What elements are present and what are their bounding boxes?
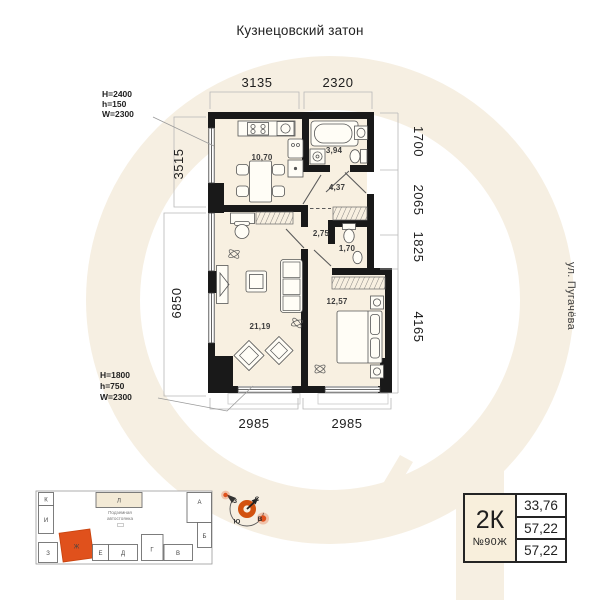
site-building-label: И bbox=[44, 518, 48, 524]
stove bbox=[248, 123, 269, 136]
dim-right-3: 1825 bbox=[411, 232, 426, 263]
apartment-info-card: 2К №90Ж 33,76 57,22 57,22 bbox=[463, 493, 567, 563]
site-building-label: В bbox=[176, 551, 180, 557]
compass-dot-small bbox=[223, 493, 227, 497]
bathtub bbox=[311, 121, 358, 146]
window-sill-left bbox=[228, 394, 300, 405]
kitchen-sink bbox=[277, 122, 294, 136]
site-building-label: Л bbox=[117, 499, 121, 505]
dim-left-2: 6850 bbox=[169, 288, 184, 319]
bed bbox=[337, 311, 382, 363]
fridge bbox=[288, 139, 303, 158]
bedroom-wardrobe bbox=[332, 277, 385, 289]
nightstand-2 bbox=[371, 365, 384, 378]
area-total: 57,22 bbox=[517, 540, 565, 561]
room-label-corridor: 2,75 bbox=[313, 229, 330, 238]
dim-bottom-2: 2985 bbox=[332, 416, 363, 431]
room-label-bathroom: 3,94 bbox=[326, 146, 343, 155]
page-title: Кузнецовский затон bbox=[0, 23, 600, 38]
site-building bbox=[187, 493, 212, 523]
nightstand-1 bbox=[371, 296, 384, 309]
pillow-1 bbox=[371, 315, 380, 335]
room-label-hallway: 4,37 bbox=[329, 183, 346, 192]
window-spec-bottom-line3: W=2300 bbox=[100, 392, 132, 402]
dim-bottom-1: 2985 bbox=[239, 416, 270, 431]
dim-right-2: 2065 bbox=[411, 185, 426, 216]
room-label-living: 21,19 bbox=[249, 322, 270, 331]
living-window-bottom bbox=[238, 387, 292, 392]
site-building-label: Е bbox=[98, 551, 102, 557]
dim-top-1: 3135 bbox=[242, 75, 273, 90]
apartment-number: №90Ж bbox=[473, 536, 508, 548]
sofa bbox=[281, 260, 303, 313]
floorplan-page: 10,70 3,94 4,37 2,75 1,70 21,19 12,57 31… bbox=[0, 0, 600, 600]
room-label-bedroom: 12,57 bbox=[326, 297, 347, 306]
bathroom-toilet bbox=[350, 150, 367, 164]
pillow-2 bbox=[371, 338, 380, 358]
parking-label-line2: автостоянка bbox=[107, 516, 134, 521]
compass-west-label: З bbox=[233, 498, 237, 505]
hall-wardrobe bbox=[333, 207, 367, 220]
window-sill-right bbox=[318, 394, 388, 405]
site-building-label: А bbox=[197, 500, 201, 506]
bedroom-window-bottom bbox=[325, 387, 380, 392]
tv-unit bbox=[217, 266, 230, 304]
dim-right-4: 4165 bbox=[411, 312, 426, 343]
compass-north-label: С bbox=[255, 496, 260, 503]
street-label: ул. Пугачёва bbox=[565, 262, 577, 331]
coffee-table bbox=[246, 271, 267, 292]
wc-toilet bbox=[343, 224, 356, 243]
window-spec-top-line2: h=150 bbox=[102, 99, 127, 109]
compass-east-label: В bbox=[258, 516, 263, 523]
kitchen-cabinet bbox=[288, 160, 303, 177]
dim-left-1: 3515 bbox=[171, 149, 186, 180]
window-spec-bottom-line1: H=1800 bbox=[100, 370, 130, 380]
site-building-label: З bbox=[46, 551, 50, 557]
living-window-upper bbox=[209, 213, 214, 271]
compass-south-label: Ю bbox=[234, 519, 241, 526]
room-label-kitchen: 10,70 bbox=[251, 153, 272, 162]
apartment-type: 2К bbox=[476, 508, 504, 533]
apartment-areas: 33,76 57,22 57,22 bbox=[517, 495, 565, 561]
site-building-label: Д bbox=[121, 551, 125, 557]
window-spec-top-line1: H=2400 bbox=[102, 89, 132, 99]
dining-table bbox=[250, 161, 272, 202]
parking-label-line1: Подземная bbox=[108, 510, 132, 515]
window-spec-top-line3: W=2300 bbox=[102, 109, 134, 119]
site-building-label-highlighted: Ж bbox=[74, 545, 80, 551]
window-spec-bottom-line2: h=750 bbox=[100, 381, 125, 391]
desk-chair bbox=[235, 222, 250, 239]
apartment-type-cell: 2К №90Ж bbox=[465, 495, 517, 561]
bathroom-sink bbox=[355, 126, 368, 140]
wc-sink bbox=[353, 251, 362, 263]
room-label-wc: 1,70 bbox=[339, 244, 356, 253]
kitchen-window bbox=[209, 128, 214, 183]
living-wardrobe bbox=[256, 212, 293, 224]
living-window-lower bbox=[209, 293, 214, 343]
washing-machine bbox=[310, 149, 325, 164]
dim-top-2: 2320 bbox=[323, 75, 354, 90]
site-building-label: К bbox=[44, 498, 48, 504]
area-without-balcony: 57,22 bbox=[517, 516, 565, 541]
dim-right-1: 1700 bbox=[411, 126, 426, 157]
site-building-label: Б bbox=[203, 534, 207, 540]
site-plan: К Л А И Б З Ж Е Д Г В Подземная автостоя… bbox=[36, 491, 212, 564]
area-living: 33,76 bbox=[517, 495, 565, 516]
